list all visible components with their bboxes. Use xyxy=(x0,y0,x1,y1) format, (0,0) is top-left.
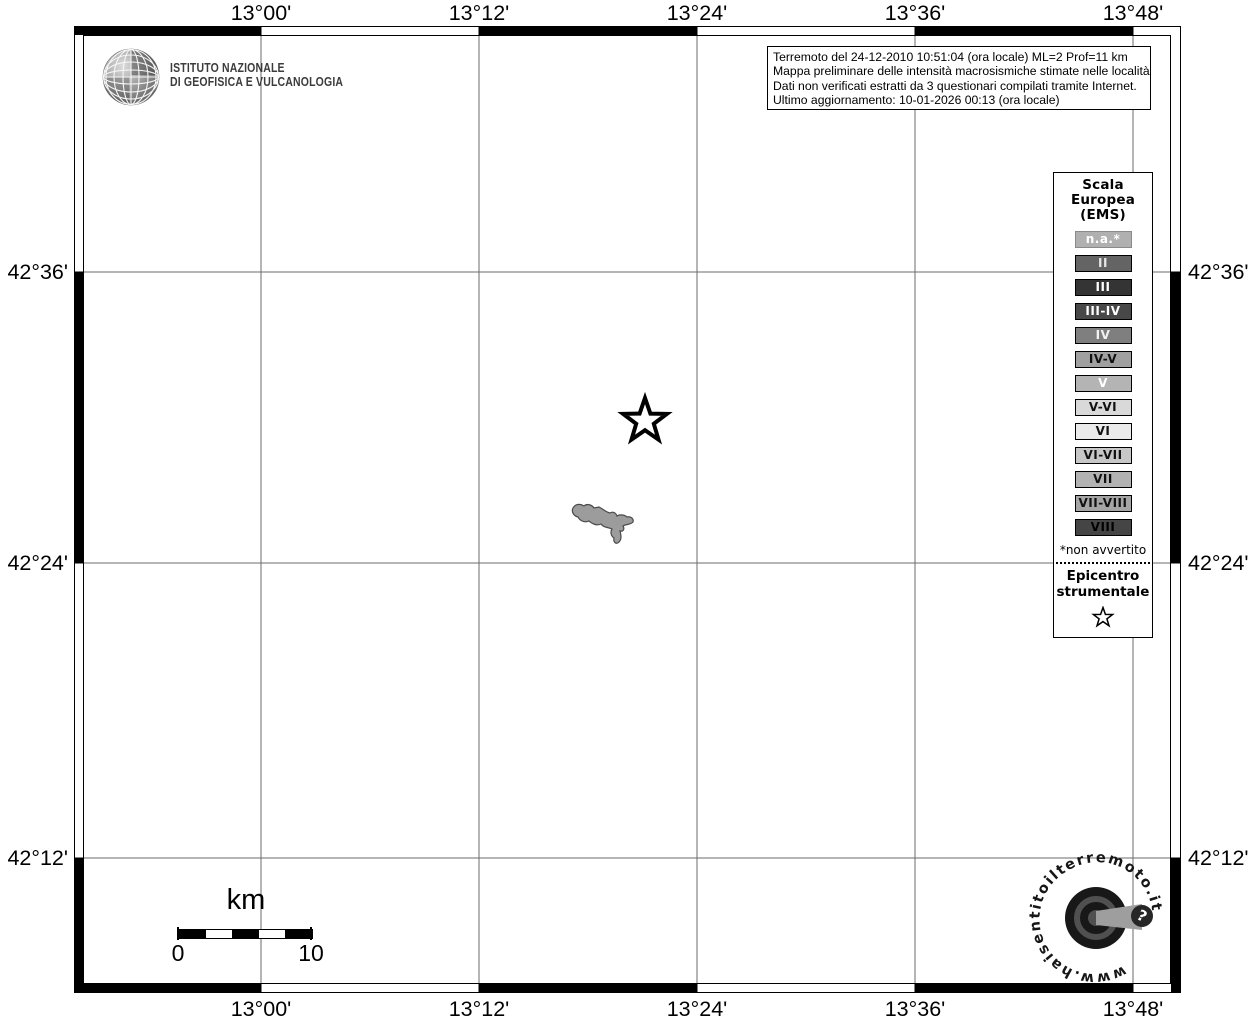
legend-epicenter-star-icon xyxy=(1091,606,1115,628)
axis-label-bottom-1: 13°12' xyxy=(419,997,539,1022)
scalebar-segment xyxy=(232,930,259,938)
legend-item-vii: VII xyxy=(1075,471,1132,488)
scalebar-tick-start xyxy=(177,927,179,940)
axis-label-left-0: 42°36' xyxy=(2,260,68,285)
axis-label-left-2: 42°12' xyxy=(2,846,68,871)
ingv-name-line2: DI GEOFISICA E VULCANOLOGIA xyxy=(170,76,344,89)
axis-label-left-1: 42°24' xyxy=(2,551,68,576)
haisentito-logo: ? www.haisentitoilterremoto.it xyxy=(1027,850,1164,986)
legend-item-vi-vii: VI-VII xyxy=(1075,447,1132,464)
legend-items: n.a.* II III III-IV IV IV-V V V-VI VI VI… xyxy=(1054,231,1152,536)
scalebar-segment xyxy=(206,930,233,938)
scalebar-start-label: 0 xyxy=(158,940,198,967)
map-graticule xyxy=(83,35,1171,983)
legend-item-iii: III xyxy=(1075,279,1132,296)
axis-label-top-4: 13°48' xyxy=(1073,1,1193,26)
map-frame xyxy=(74,26,1181,993)
legend-item-iii-iv: III-IV xyxy=(1075,303,1132,320)
axis-label-bottom-3: 13°36' xyxy=(855,997,975,1022)
legend-item-vii-viii: VII-VIII xyxy=(1075,495,1132,512)
legend-divider xyxy=(1056,562,1150,564)
ingv-logo: ISTITUTO NAZIONALE DI GEOFISICA E VULCAN… xyxy=(103,49,344,105)
scalebar xyxy=(178,929,313,939)
scalebar-segment xyxy=(285,930,312,938)
axis-label-right-0: 42°36' xyxy=(1188,260,1255,285)
earthquake-info-box: Terremoto del 24-12-2010 10:51:04 (ora l… xyxy=(767,46,1151,110)
legend-item-iv-v: IV-V xyxy=(1075,351,1132,368)
axis-label-bottom-4: 13°48' xyxy=(1073,997,1193,1022)
info-line-data: Dati non verificati estratti da 3 questi… xyxy=(773,79,1145,93)
axis-label-right-2: 42°12' xyxy=(1188,846,1255,871)
legend-item-v: V xyxy=(1075,375,1132,392)
legend-title: Scala Europea (EMS) xyxy=(1054,178,1152,223)
axis-label-top-1: 13°12' xyxy=(419,1,539,26)
info-line-map: Mappa preliminare delle intensità macros… xyxy=(773,64,1145,78)
legend-item-ii: II xyxy=(1075,255,1132,272)
axis-label-bottom-2: 13°24' xyxy=(637,997,757,1022)
info-line-update: Ultimo aggiornamento: 10-01-2026 00:13 (… xyxy=(773,93,1145,107)
legend-title-line2: Europea xyxy=(1054,193,1152,208)
epicenter-star-marker xyxy=(623,398,667,440)
legend-item-v-vi: V-VI xyxy=(1075,399,1132,416)
lake-shape xyxy=(572,504,633,543)
info-line-event: Terremoto del 24-12-2010 10:51:04 (ora l… xyxy=(773,50,1145,64)
ingv-name-line1: ISTITUTO NAZIONALE xyxy=(170,62,285,75)
axis-label-bottom-0: 13°00' xyxy=(201,997,321,1022)
legend-footnote: *non avvertito xyxy=(1054,543,1152,558)
legend-item-iv: IV xyxy=(1075,327,1132,344)
legend-epicenter-line1: Epicentro xyxy=(1054,569,1152,585)
legend-item-vi: VI xyxy=(1075,423,1132,440)
legend-epicenter-line2: strumentale xyxy=(1054,585,1152,601)
legend-title-line3: (EMS) xyxy=(1054,208,1152,223)
axis-label-top-0: 13°00' xyxy=(201,1,321,26)
axis-label-top-2: 13°24' xyxy=(637,1,757,26)
axis-label-top-3: 13°36' xyxy=(855,1,975,26)
legend-epicenter-label: Epicentro strumentale xyxy=(1054,569,1152,600)
scalebar-unit-label: km xyxy=(196,884,296,917)
scalebar-segment xyxy=(179,930,206,938)
axis-label-right-1: 42°24' xyxy=(1188,551,1255,576)
legend-title-line1: Scala xyxy=(1054,178,1152,193)
scalebar-segment xyxy=(259,930,286,938)
intensity-legend: Scala Europea (EMS) n.a.* II III III-IV … xyxy=(1053,172,1153,638)
legend-item-na: n.a.* xyxy=(1075,231,1132,248)
legend-item-viii: VIII xyxy=(1075,519,1132,536)
scalebar-tick-end xyxy=(310,927,312,940)
macroseismic-map-page: ISTITUTO NAZIONALE DI GEOFISICA E VULCAN… xyxy=(0,0,1255,1024)
scalebar-end-label: 10 xyxy=(289,940,333,967)
